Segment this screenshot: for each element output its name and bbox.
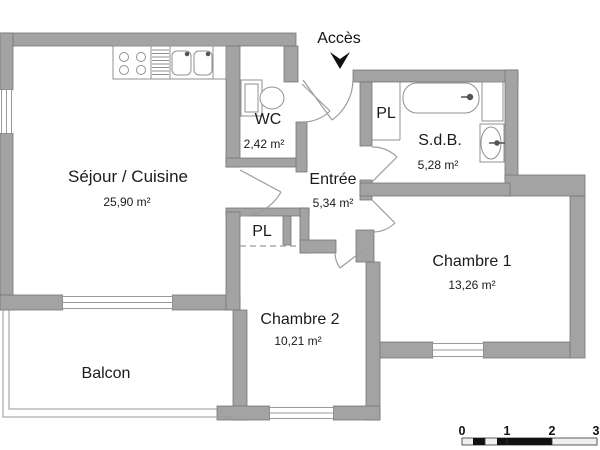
svg-text:2: 2 xyxy=(549,424,556,438)
room-label-wc: WC 2,42 m² xyxy=(244,111,285,151)
svg-text:13,26 m²: 13,26 m² xyxy=(448,278,495,292)
floor-plan-svg: Accès Séjour / Cuisine 25,90 m² WC 2,42 … xyxy=(0,0,600,450)
bathtub-icon xyxy=(403,83,479,113)
closet-label-sdb: PL xyxy=(376,105,396,122)
column-icon xyxy=(482,82,503,121)
svg-text:0: 0 xyxy=(459,424,466,438)
room-label-balcon: Balcon xyxy=(82,365,131,382)
balcony-railing xyxy=(3,310,233,417)
access-arrow-icon xyxy=(330,52,350,69)
floor-plan: Accès Séjour / Cuisine 25,90 m² WC 2,42 … xyxy=(0,0,600,450)
window-sejour-left xyxy=(0,90,13,133)
window-sejour-balcon xyxy=(63,295,172,310)
svg-text:1: 1 xyxy=(504,424,511,438)
room-label-sdb: S.d.B. 5,28 m² xyxy=(418,132,462,172)
svg-text:Chambre 2: Chambre 2 xyxy=(260,311,339,328)
svg-text:Entrée: Entrée xyxy=(309,171,356,188)
access-label: Accès xyxy=(317,30,361,47)
svg-text:S.d.B.: S.d.B. xyxy=(418,132,462,149)
svg-text:WC: WC xyxy=(255,111,282,128)
svg-text:Séjour / Cuisine: Séjour / Cuisine xyxy=(68,167,188,186)
room-label-entree: Entrée 5,34 m² xyxy=(309,171,356,210)
washbasin-icon xyxy=(480,124,505,162)
svg-text:5,34 m²: 5,34 m² xyxy=(313,196,354,210)
room-label-chambre2: Chambre 2 10,21 m² xyxy=(260,311,339,348)
svg-text:10,21 m²: 10,21 m² xyxy=(274,334,321,348)
door-chambre1 xyxy=(372,200,395,232)
closet-label-chambre2: PL xyxy=(252,223,272,240)
svg-text:Chambre 1: Chambre 1 xyxy=(432,253,511,270)
svg-text:25,90 m²: 25,90 m² xyxy=(103,195,150,209)
svg-text:2,42 m²: 2,42 m² xyxy=(244,137,285,151)
svg-text:3: 3 xyxy=(593,424,600,438)
svg-text:5,28 m²: 5,28 m² xyxy=(418,158,459,172)
door-entrance xyxy=(303,80,353,120)
scale-bar: 0 1 2 3 xyxy=(459,424,600,445)
window-chambre2 xyxy=(270,406,333,420)
room-label-sejour: Séjour / Cuisine 25,90 m² xyxy=(68,167,188,209)
door-sdb xyxy=(372,147,397,182)
room-label-chambre1: Chambre 1 13,26 m² xyxy=(432,253,511,292)
door-wc xyxy=(302,84,330,122)
window-chambre1 xyxy=(433,342,483,358)
